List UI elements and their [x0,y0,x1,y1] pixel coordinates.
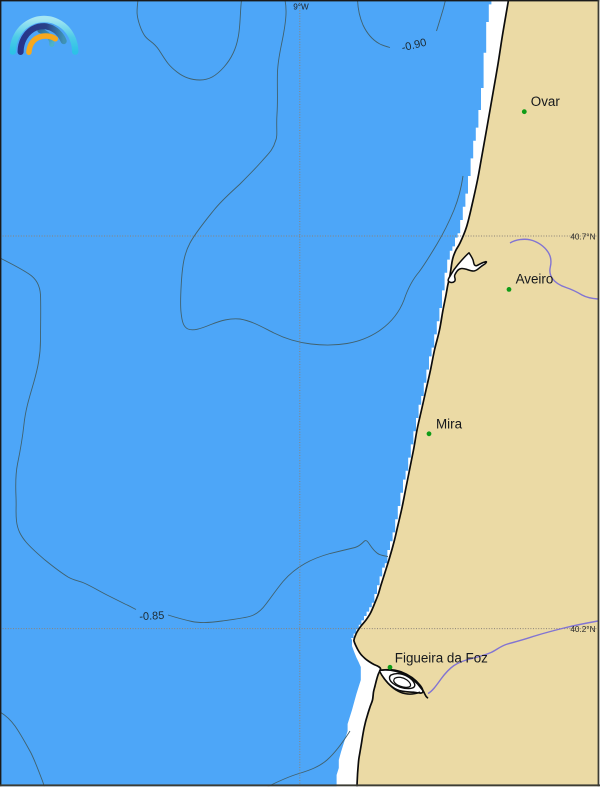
svg-text:40.7°N: 40.7°N [570,233,595,242]
svg-text:Aveiro: Aveiro [516,271,554,286]
svg-text:Figueira da Foz: Figueira da Foz [395,651,488,666]
svg-text:40.2°N: 40.2°N [570,625,595,634]
svg-text:-0.85: -0.85 [139,610,165,623]
svg-text:Ovar: Ovar [531,94,561,109]
svg-text:9°W: 9°W [293,3,309,12]
svg-text:Mira: Mira [436,416,463,431]
